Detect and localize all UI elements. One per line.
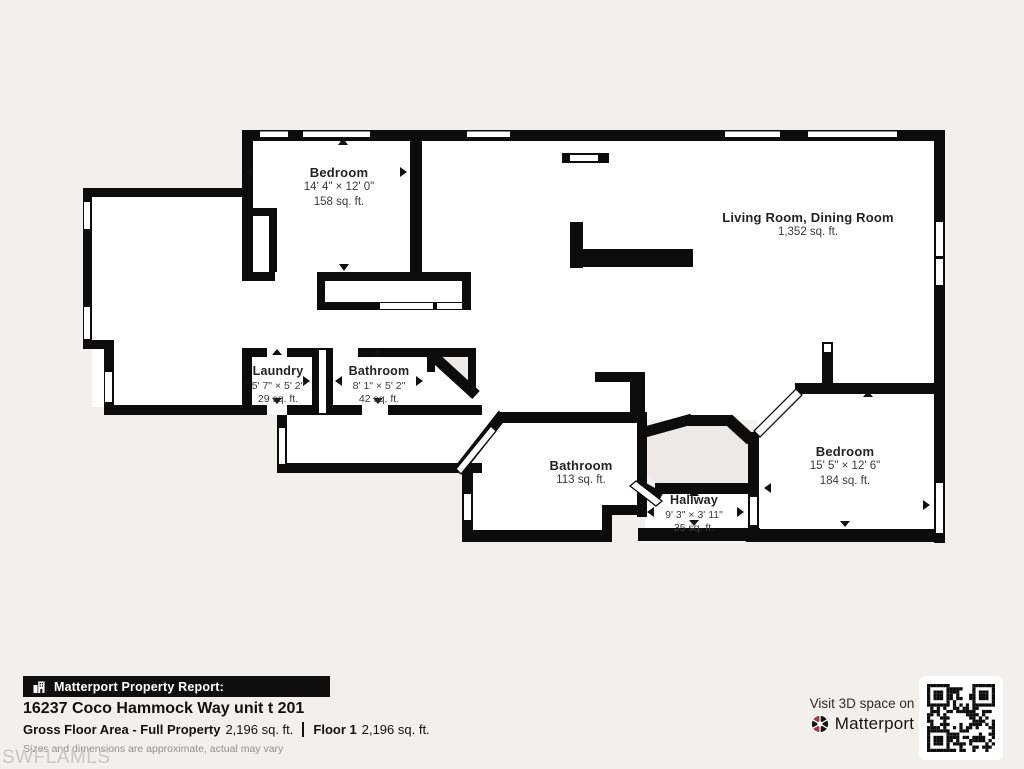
- room-name: Bathroom: [349, 364, 410, 379]
- room-fills-layer: [92, 139, 934, 531]
- room-area: 113 sq. ft.: [550, 474, 613, 488]
- room-label-living-dining: Living Room, Dining Room 1,352 sq. ft.: [722, 210, 894, 240]
- room-label-bathroom-small: Bathroom 8' 1" × 5' 2" 42 sq. ft.: [349, 364, 410, 406]
- room-area: 158 sq. ft.: [304, 196, 374, 210]
- room-label-laundry: Laundry 5' 7" × 5' 2" 29 sq. ft.: [252, 364, 305, 406]
- room-area: 35 sq. ft.: [665, 522, 723, 534]
- room-dimensions: 14' 4" × 12' 0": [304, 181, 374, 195]
- room-dimensions: 8' 1" × 5' 2": [349, 380, 410, 392]
- room-area: 1,352 sq. ft.: [722, 226, 894, 240]
- room-label-bedroom-1: Bedroom 14' 4" × 12' 0" 158 sq. ft.: [304, 165, 374, 209]
- room-label-bathroom-large: Bathroom 113 sq. ft.: [550, 458, 613, 488]
- room-area: 184 sq. ft.: [810, 475, 880, 489]
- building-icon: [33, 681, 45, 693]
- room-area: 29 sq. ft.: [252, 393, 305, 405]
- room-name: Living Room, Dining Room: [722, 210, 894, 225]
- room-label-bedroom-2: Bedroom 15' 5" × 12' 6" 184 sq. ft.: [810, 444, 880, 488]
- room-name: Laundry: [252, 364, 305, 379]
- floor-1-value: 2,196 sq. ft.: [362, 722, 430, 737]
- matterport-brand-row: Matterport: [810, 714, 914, 734]
- matterport-wordmark: Matterport: [835, 714, 914, 734]
- floor-area-line: Gross Floor Area - Full Property 2,196 s…: [23, 722, 430, 737]
- qr-code-card: [919, 676, 1003, 760]
- room-name: Bedroom: [810, 444, 880, 459]
- property-address: 16237 Coco Hammock Way unit t 201: [23, 700, 304, 718]
- room-dimensions: 5' 7" × 5' 2": [252, 380, 305, 392]
- room-name: Hallway: [665, 493, 723, 508]
- visit-3d-text: Visit 3D space on: [810, 696, 915, 711]
- report-header-bar: Matterport Property Report:: [23, 676, 330, 697]
- qr-code: [927, 684, 995, 752]
- room-dimensions: 9' 3" × 3' 11": [665, 509, 723, 521]
- window-bar: [562, 153, 609, 163]
- room-dimensions: 15' 5" × 12' 6": [810, 460, 880, 474]
- report-label: Matterport Property Report:: [54, 680, 224, 694]
- room-label-hallway: Hallway 9' 3" × 3' 11" 35 sq. ft.: [665, 493, 723, 535]
- matterport-logo-icon: [810, 714, 830, 734]
- mls-watermark: SWFLAMLS: [2, 747, 111, 769]
- room-area: 42 sq. ft.: [349, 393, 410, 405]
- divider: [302, 722, 304, 737]
- visit-3d-block: Visit 3D space on Matterport: [806, 696, 918, 734]
- floor-plan: [0, 0, 1024, 768]
- gross-floor-area-label: Gross Floor Area - Full Property: [23, 722, 220, 737]
- gross-floor-area-value: 2,196 sq. ft.: [225, 722, 293, 737]
- room-name: Bedroom: [304, 165, 374, 180]
- floor-1-label: Floor 1: [313, 722, 356, 737]
- room-name: Bathroom: [550, 458, 613, 473]
